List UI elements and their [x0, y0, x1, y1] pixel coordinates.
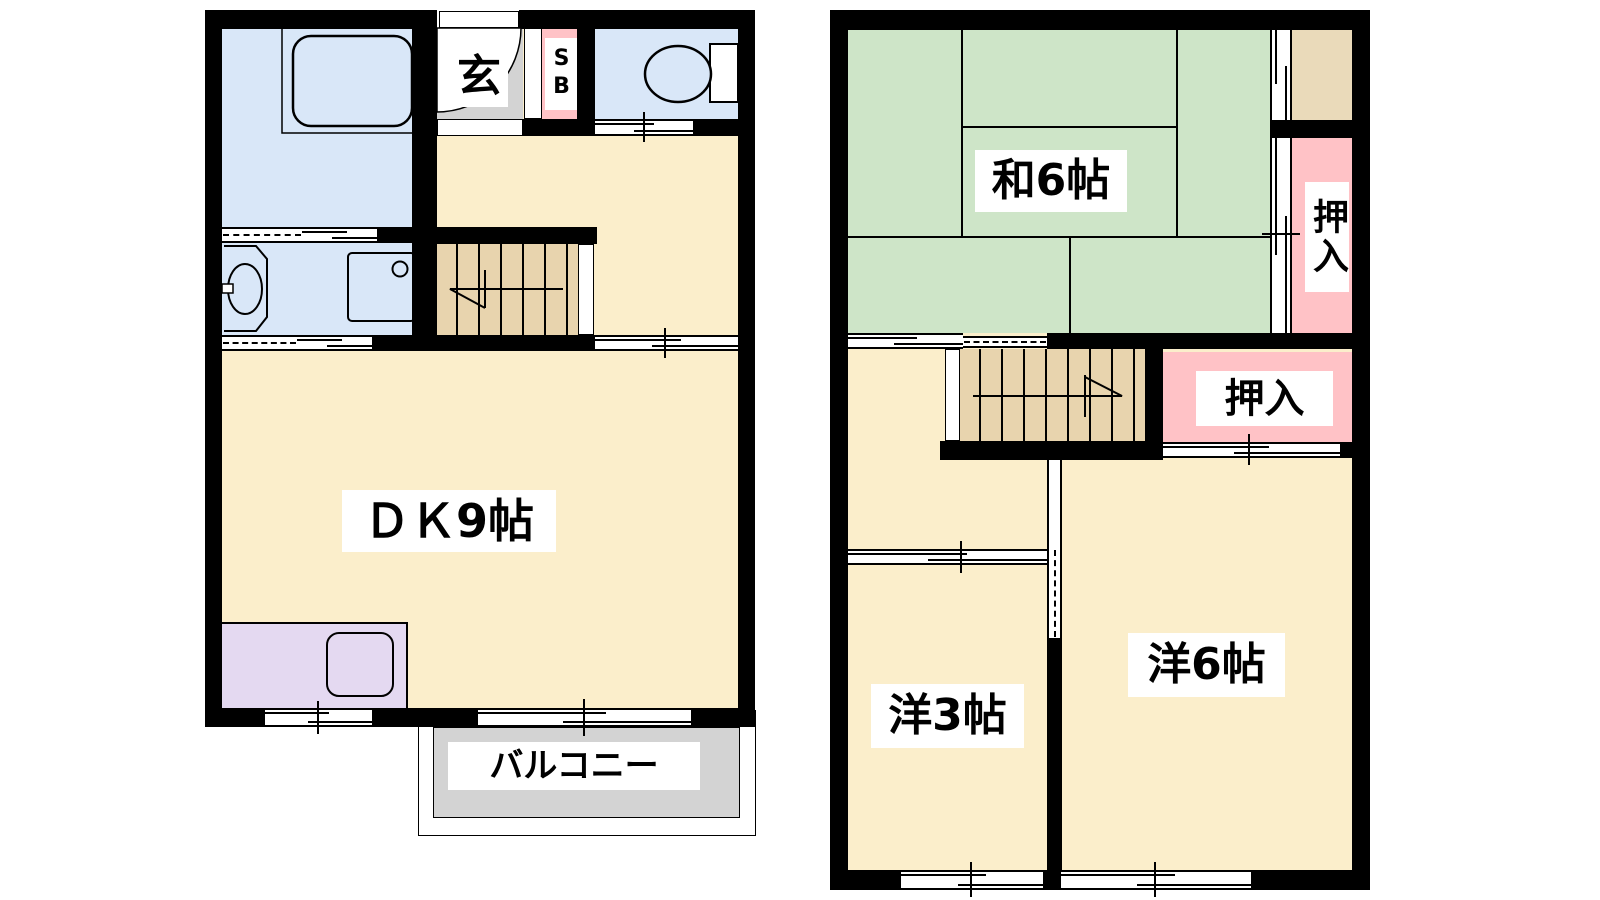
hall-dk-sliding-door [595, 335, 738, 351]
bath-folding-door [222, 227, 302, 243]
wall [1352, 10, 1370, 890]
japanese-room-folding-door [963, 336, 1047, 348]
wall [578, 335, 595, 351]
washroom-folding-door [222, 335, 297, 351]
wall [412, 28, 437, 335]
room-label-western3: 洋3帖 [871, 684, 1024, 748]
washroom-sliding-door [297, 335, 372, 351]
wall [1047, 333, 1352, 349]
room-label-washitsu: 和6帖 [975, 150, 1127, 212]
genkan-step [437, 119, 523, 136]
toilet-room [595, 28, 738, 119]
window-tick [1154, 862, 1156, 897]
room-label-dk: ＤＫ9帖 [342, 490, 556, 552]
partition-opening [1047, 460, 1062, 550]
room-label-western6: 洋6帖 [1128, 633, 1285, 697]
stairs-floor2-side-strip [945, 349, 960, 441]
wall [523, 119, 579, 136]
door-tick [1262, 233, 1300, 235]
wall [830, 10, 1370, 30]
genkan-shoebox-divider [524, 28, 542, 119]
washroom-sliding-door [302, 227, 377, 243]
western3-sliding-door [848, 549, 1047, 565]
partition-sliding-door [1047, 549, 1062, 638]
window-tick [970, 862, 972, 897]
door-tick [664, 328, 666, 358]
wall [1043, 870, 1061, 890]
window-tick [583, 699, 585, 736]
window-tick [317, 701, 319, 734]
tatami-line [1069, 237, 1071, 333]
wall [830, 870, 901, 890]
wall [1251, 870, 1370, 890]
wall [1145, 349, 1163, 442]
wall [433, 227, 597, 244]
closet-fusuma-door [1270, 138, 1292, 333]
wall [577, 28, 595, 136]
tatami-line [961, 126, 1178, 128]
room-label-closet-lower: 押入 [1196, 371, 1333, 426]
wall [1047, 637, 1062, 870]
kitchen-counter [222, 622, 408, 708]
wall [830, 10, 848, 890]
wall [372, 335, 578, 351]
wall [519, 10, 755, 29]
floor-plan: ＤＫ9帖 玄 SB バルコニー 和6帖 押入 押入 洋3帖 洋6帖 [0, 0, 1600, 900]
stairs-floor1-side-strip [578, 244, 594, 335]
room-label-shoebox: SB [545, 38, 577, 110]
wall [372, 708, 478, 727]
alcove [1292, 30, 1352, 120]
wall [205, 708, 265, 727]
western6-window [1061, 870, 1251, 890]
room-label-closet-upper: 押入 [1305, 182, 1349, 292]
entrance-door-leaf [439, 11, 519, 28]
door-tick [1248, 434, 1250, 465]
stairs-floor2 [959, 349, 1145, 441]
japanese-room-sliding-door [848, 333, 963, 349]
western3-window [901, 870, 1043, 890]
wall [691, 708, 755, 727]
stairs-floor1 [436, 244, 578, 335]
wall [377, 227, 412, 243]
room-label-balcony: バルコニー [448, 742, 700, 790]
wall [205, 10, 222, 727]
wall [738, 10, 755, 727]
tatami-line [848, 236, 1270, 238]
washroom [222, 243, 412, 335]
wall [1340, 442, 1352, 458]
tatami-line [1176, 30, 1178, 238]
wall [205, 10, 437, 29]
door-tick [960, 541, 962, 573]
wall [940, 441, 1163, 460]
wall [1270, 120, 1352, 138]
bathroom [222, 28, 412, 227]
room-label-genkan: 玄 [450, 47, 508, 107]
tatami-line [961, 30, 963, 238]
wall [693, 119, 738, 136]
closet-fusuma-door [1270, 30, 1292, 120]
closet-lower-sliding-door [1163, 442, 1340, 458]
door-tick [643, 112, 645, 142]
